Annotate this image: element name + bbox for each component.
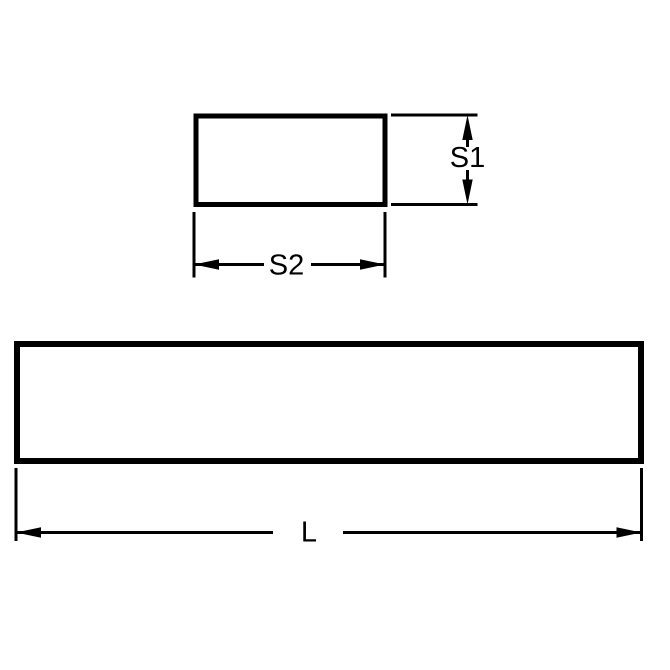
length-rectangle [17,344,641,461]
arrowhead-up [462,115,472,140]
cross-section-view: S1 S2 [194,115,485,282]
arrowhead-left [194,259,219,269]
dimension-label-l: L [301,517,317,549]
arrowhead-right [360,259,385,269]
dimension-l: L [16,468,642,549]
arrowhead-down [462,180,472,205]
cross-section-rectangle [196,116,385,205]
dimension-label-s2: S2 [269,250,304,282]
dimension-drawing: S1 S2 L [0,0,670,670]
dimension-s2: S2 [194,212,385,282]
dimension-label-s1: S1 [450,142,485,174]
arrowhead-left [16,527,41,537]
length-view: L [16,344,642,549]
dimension-s1: S1 [391,115,485,205]
arrowhead-right [617,527,642,537]
